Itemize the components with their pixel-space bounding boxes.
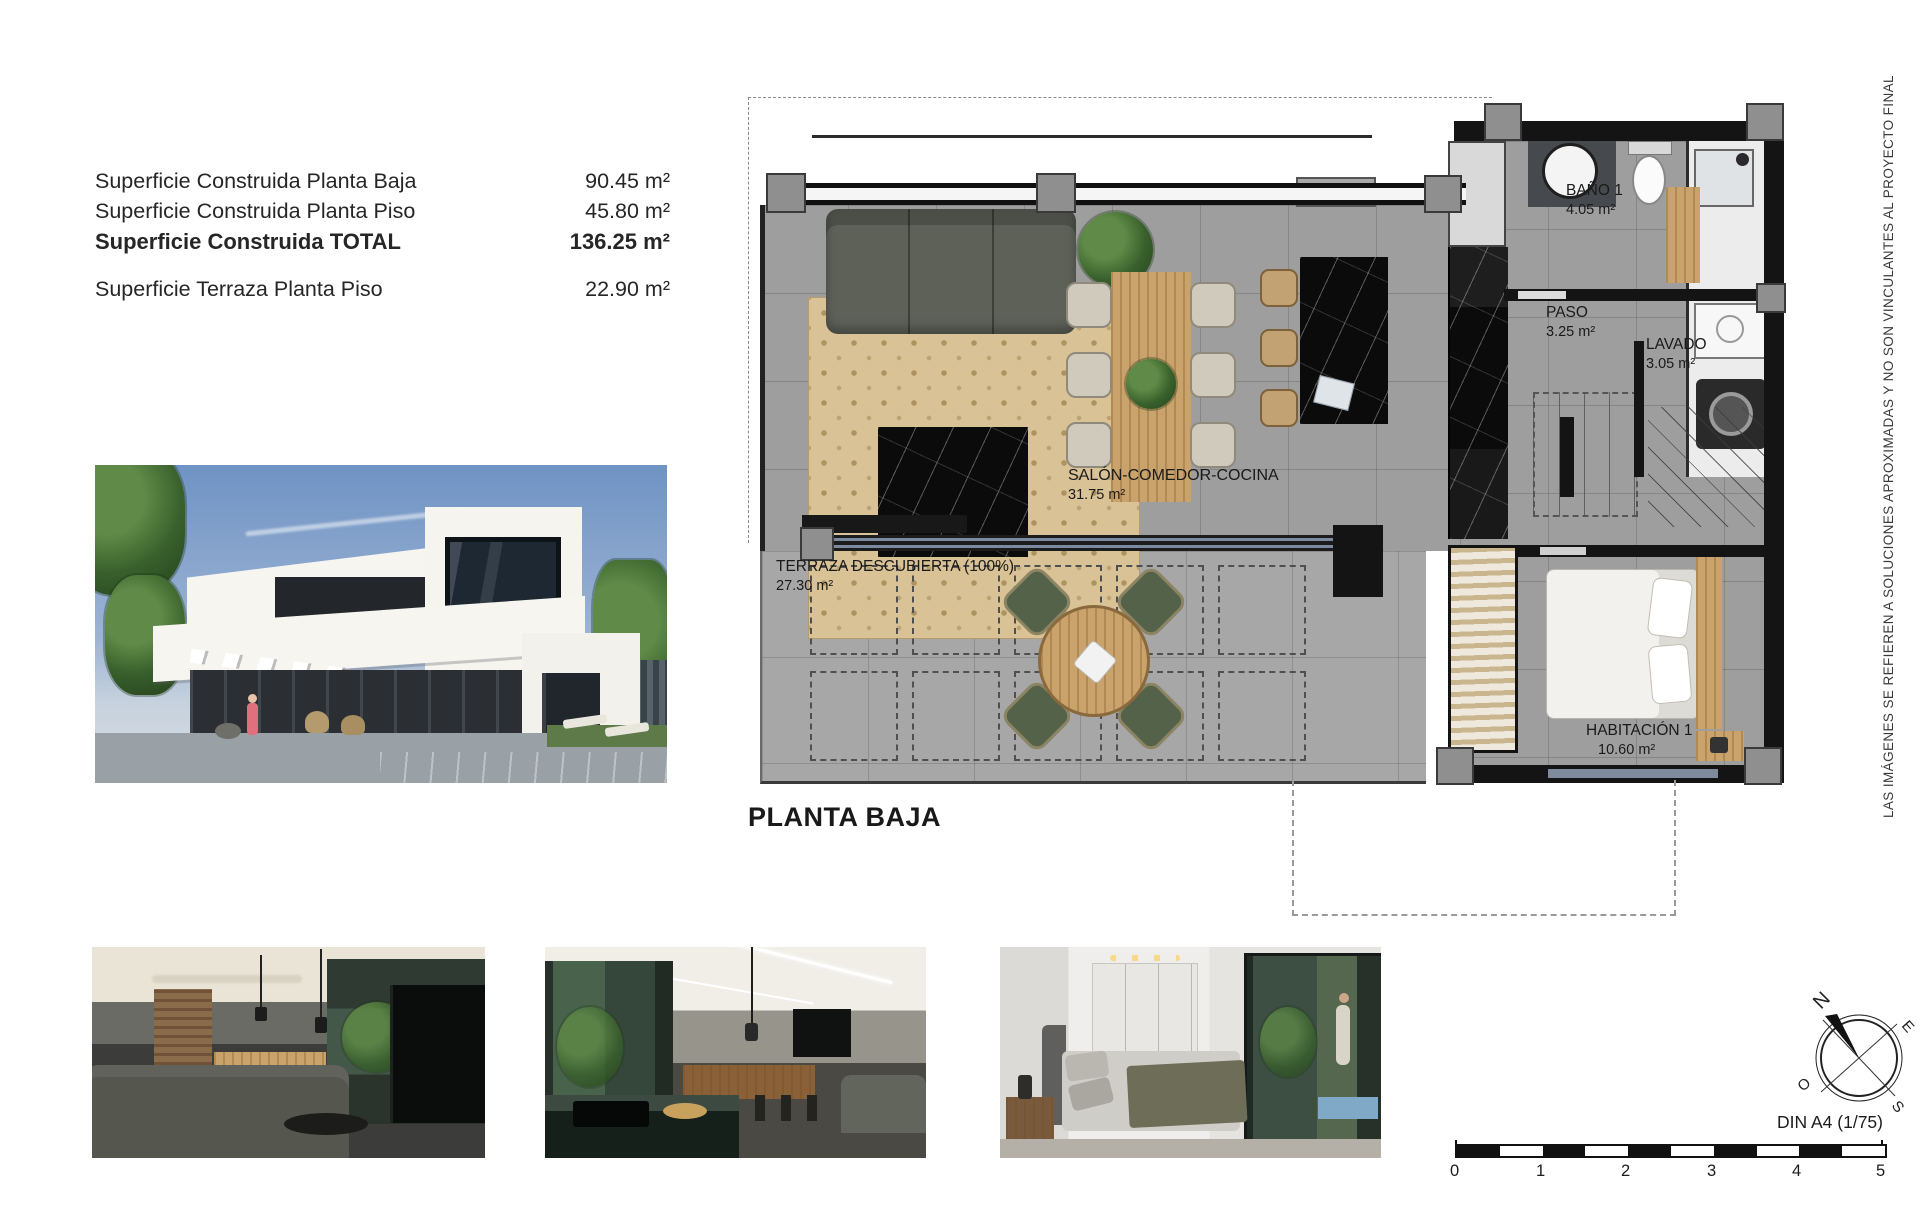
salon-left-wall	[760, 205, 765, 551]
room-name: LAVADO	[1646, 335, 1707, 355]
scale-segment	[1671, 1146, 1714, 1156]
ceiling-light-strip	[698, 947, 893, 984]
person-silhouette	[1336, 1005, 1350, 1065]
scale-label: DIN A4 (1/75)	[1777, 1112, 1883, 1133]
scale-segment	[1757, 1146, 1800, 1156]
room-label-terraza: TERRAZA DESCUBIERTA (100%) 27.30 m²	[776, 557, 1014, 597]
tv-panel	[793, 1009, 851, 1057]
pendant-lamp-shade	[315, 1017, 327, 1033]
scale-segment	[1842, 1146, 1885, 1156]
room-area: 3.25 m²	[1546, 323, 1595, 342]
interior-photo-kitchen	[545, 947, 926, 1158]
garden-greenery	[557, 1007, 623, 1087]
pendant-lamp	[751, 947, 753, 1025]
legal-disclaimer: LAS IMÁGENES SE REFIEREN A SOLUCIONES AP…	[1881, 88, 1896, 818]
room-name: TERRAZA DESCUBIERTA (100%)	[776, 557, 1014, 577]
rattan-chair	[341, 715, 365, 735]
bed-pillow	[1647, 577, 1694, 639]
kitchen-tall-units-black	[1448, 247, 1508, 539]
interior-photo-living	[92, 947, 485, 1158]
bar-stool	[1260, 329, 1298, 367]
room-label-bano: BAÑO 1 4.05 m²	[1566, 181, 1623, 221]
floor-strip	[1000, 1139, 1381, 1158]
pouf	[215, 723, 241, 739]
toilet-bowl	[1632, 155, 1666, 205]
pergola-cell	[1218, 565, 1306, 655]
rattan-chair	[305, 711, 329, 733]
salon-top-wall	[774, 183, 1466, 205]
toilet-tank	[1628, 141, 1672, 155]
shower-head	[1736, 153, 1749, 166]
room-label-lavado: LAVADO 3.05 m²	[1646, 335, 1707, 375]
bath-bench	[1666, 187, 1700, 283]
summary-label: Superficie Terraza Planta Piso	[95, 274, 383, 304]
structural-post	[1746, 103, 1784, 141]
summary-label: Superficie Construida Planta Baja	[95, 166, 417, 196]
scale-number: 4	[1792, 1162, 1801, 1181]
bath-door-gap	[1518, 291, 1566, 299]
bed-headboard	[1696, 557, 1722, 729]
villa-exterior-photo	[95, 465, 667, 783]
stair-winders-hatch	[1648, 407, 1768, 527]
summary-value: 136.25 m²	[570, 226, 670, 258]
surface-summary: Superficie Construida Planta Baja 90.45 …	[95, 166, 670, 304]
ceiling-spots	[1110, 955, 1180, 961]
scale-bar-segments	[1455, 1144, 1887, 1158]
structural-post	[1424, 175, 1462, 213]
summary-value: 90.45 m²	[585, 166, 670, 196]
summary-row: Superficie Terraza Planta Piso 22.90 m²	[95, 274, 670, 304]
bedroom-window-band	[1548, 769, 1718, 778]
scale-segment	[1714, 1146, 1757, 1156]
room-label-habitacion: HABITACIÓN 1 10.60 m²	[1586, 721, 1693, 761]
tv-screen	[390, 985, 485, 1123]
summary-row: Superficie Construida Planta Baja 90.45 …	[95, 166, 670, 196]
room-area: 4.05 m²	[1566, 201, 1623, 220]
room-area: 3.05 m²	[1646, 355, 1707, 374]
woman-head	[248, 694, 257, 703]
scale-number: 5	[1876, 1162, 1885, 1181]
compass-e-label: E	[1898, 1017, 1917, 1036]
structural-post	[800, 527, 834, 561]
sofa	[826, 209, 1076, 334]
compass-o-label: O	[1795, 1075, 1814, 1095]
dining-chair	[1066, 352, 1112, 398]
stair-dashed-treads	[1533, 392, 1638, 517]
ceiling-light	[152, 975, 302, 983]
scale-segment	[1799, 1146, 1842, 1156]
structural-post	[1484, 103, 1522, 141]
room-area: 27.30 m²	[776, 577, 1014, 596]
scale-segment	[1457, 1146, 1500, 1156]
structural-post	[766, 173, 806, 213]
pendant-lamp-shade	[255, 1007, 267, 1021]
room-label-salon: SALÓN-COMEDOR-COCINA 31.75 m²	[1068, 465, 1279, 505]
compass-s-label: S	[1888, 1098, 1907, 1113]
scale-bar: DIN A4 (1/75) 0 1 2 3 4 5	[1455, 1112, 1883, 1182]
pergola-cell	[912, 671, 1000, 761]
dining-table	[683, 1065, 815, 1099]
induction-hob	[573, 1101, 649, 1127]
compass: N E O S	[1795, 988, 1920, 1113]
compass-rose-icon: N E O S	[1795, 988, 1920, 1113]
bedroom-door-gap	[1540, 547, 1586, 555]
summary-label: Superficie Construida TOTAL	[95, 226, 401, 258]
interior-photo-bedroom	[1000, 947, 1381, 1158]
room-label-paso: PASO 3.25 m²	[1546, 303, 1595, 343]
scale-segment	[1500, 1146, 1543, 1156]
bar-stool	[1260, 269, 1298, 307]
dining-chair	[1190, 422, 1236, 468]
scale-segment	[1543, 1146, 1586, 1156]
room-name: HABITACIÓN 1	[1586, 721, 1693, 741]
dining-chair	[1066, 422, 1112, 468]
laundry-sink-basin	[1716, 315, 1744, 343]
compass-n-label: N	[1809, 988, 1835, 1014]
nightstand-decor	[1710, 737, 1728, 753]
brochure-page: Superficie Construida Planta Baja 90.45 …	[0, 0, 1920, 1212]
dining-chair	[1190, 352, 1236, 398]
room-name: PASO	[1546, 303, 1595, 323]
scale-number: 1	[1536, 1162, 1545, 1181]
lavado-wall	[1634, 341, 1644, 477]
summary-label: Superficie Construida Planta Piso	[95, 196, 415, 226]
structural-post	[1744, 747, 1782, 785]
room-name: SALÓN-COMEDOR-COCINA	[1068, 465, 1279, 486]
summary-value: 45.80 m²	[585, 196, 670, 226]
plan-title: PLANTA BAJA	[748, 802, 941, 833]
pendant-lamp	[320, 949, 322, 1019]
table-lamp	[1018, 1075, 1032, 1099]
coffee-table-silhouette	[284, 1113, 368, 1135]
terrace-door-post	[1333, 525, 1383, 597]
pergola-cell	[1218, 671, 1306, 761]
pool-glimpse	[1318, 1097, 1378, 1119]
room-area: 10.60 m²	[1598, 741, 1693, 760]
wood-slat-wall	[154, 989, 212, 1071]
scale-segment	[1585, 1146, 1628, 1156]
paso-door-jamb	[1560, 417, 1574, 497]
floor-plan: SALÓN-COMEDOR-COCINA 31.75 m² TERRAZA DE…	[748, 97, 1793, 809]
room-area: 31.75 m²	[1068, 486, 1279, 505]
dining-chair	[1190, 282, 1236, 328]
person-head	[1339, 993, 1349, 1003]
scale-segment	[1628, 1146, 1671, 1156]
dining-chair	[1066, 282, 1112, 328]
structural-post	[1756, 283, 1786, 313]
summary-value: 22.90 m²	[585, 274, 670, 304]
sofa-silhouette	[92, 1065, 349, 1158]
room-name: BAÑO 1	[1566, 181, 1623, 201]
pool	[380, 752, 667, 783]
scale-number: 3	[1707, 1162, 1716, 1181]
nightstand	[1006, 1097, 1054, 1143]
fruit-bowl	[663, 1103, 707, 1119]
summary-row: Superficie Construida Planta Piso 45.80 …	[95, 196, 670, 226]
summary-row-total: Superficie Construida TOTAL 136.25 m²	[95, 226, 670, 258]
table-centerpiece-plant	[1126, 359, 1176, 409]
bar-stool	[1260, 389, 1298, 427]
woman-figure	[247, 703, 258, 735]
structural-post	[1036, 173, 1076, 213]
sofa-silhouette	[841, 1075, 926, 1133]
right-outer-wall	[1764, 121, 1784, 771]
pendant-lamp	[260, 955, 262, 1010]
upper-floor-dashed-outline	[1292, 780, 1676, 916]
scale-number: 2	[1621, 1162, 1630, 1181]
pendant-lamp-shade	[745, 1023, 758, 1041]
staircase	[1448, 545, 1518, 753]
roof-overhang-line	[812, 135, 1372, 138]
garden-greenery	[1260, 1007, 1316, 1077]
bed-blanket	[1126, 1060, 1247, 1128]
terrace-sliding-door	[833, 535, 1338, 551]
bed-pillow	[1648, 643, 1693, 704]
pergola-cell	[810, 671, 898, 761]
scale-number: 0	[1450, 1162, 1459, 1181]
